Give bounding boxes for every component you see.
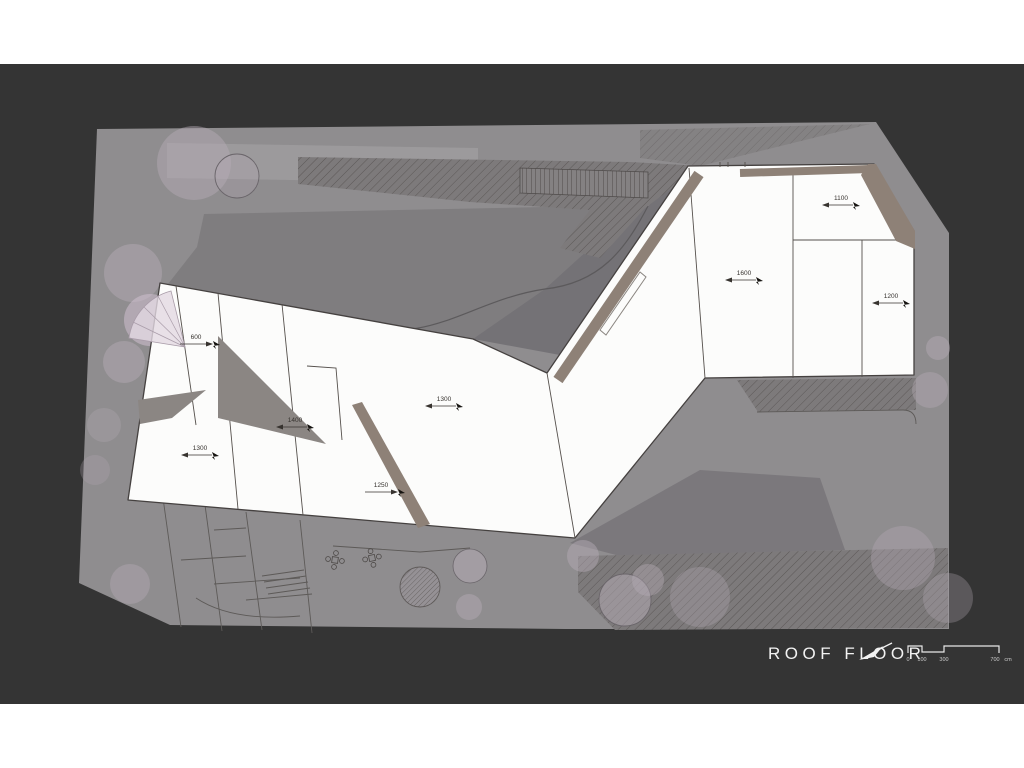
tree-symbol [926,336,950,360]
tree-symbol [215,154,259,198]
tree-symbol [912,372,948,408]
tree-symbol [632,564,664,596]
tree-symbol [87,408,121,442]
scale-unit-label: cm [1004,657,1012,663]
tree-symbol [110,564,150,604]
plan-drawing: 600 1300 1400 1300 1250 [0,0,1024,768]
scale-tick-label: 700 [990,657,999,663]
tree-symbol [567,540,599,572]
tree-symbol [456,594,482,620]
exterior-stairs [520,168,648,198]
tree-symbol [80,455,110,485]
scale-tick-label: 300 [939,657,948,663]
scale-tick-label: 100 [917,657,926,663]
page-title: ROOF FLOOR [768,644,925,663]
tree-symbol [103,341,145,383]
svg-text:1400: 1400 [288,417,303,424]
tree-symbol [871,526,935,590]
svg-text:1300: 1300 [193,445,208,452]
tree-symbol [104,244,162,302]
tree-symbol [453,549,487,583]
svg-text:1250: 1250 [374,482,389,489]
svg-text:600: 600 [191,334,202,341]
tree-symbol-hatched [400,567,440,607]
svg-text:1300: 1300 [437,396,452,403]
svg-text:1100: 1100 [834,195,848,202]
tree-symbol [923,573,973,623]
tree-symbol [670,567,730,627]
scale-tick-label: 0 [906,657,909,663]
svg-text:1600: 1600 [737,270,752,277]
svg-text:1200: 1200 [884,293,899,300]
roof-floor-plan-sheet: 600 1300 1400 1300 1250 [0,0,1024,768]
